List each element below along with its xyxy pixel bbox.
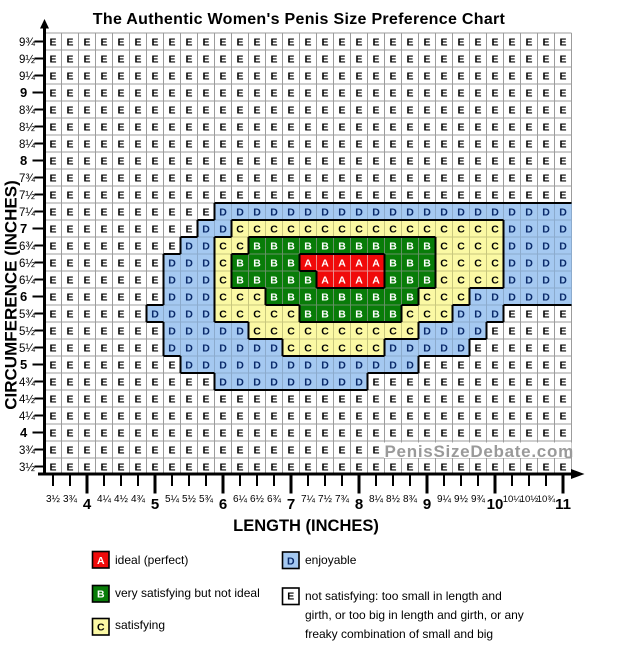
svg-text:E: E	[202, 206, 209, 218]
svg-text:E: E	[236, 104, 243, 116]
svg-text:D: D	[185, 325, 193, 337]
svg-text:E: E	[389, 410, 396, 422]
svg-text:E: E	[83, 70, 90, 82]
svg-text:5¾: 5¾	[19, 309, 35, 321]
svg-text:E: E	[117, 53, 124, 65]
svg-text:E: E	[83, 308, 90, 320]
svg-text:E: E	[423, 376, 430, 388]
svg-text:E: E	[219, 53, 226, 65]
svg-text:E: E	[355, 121, 362, 133]
svg-text:B: B	[423, 274, 431, 286]
svg-text:E: E	[406, 172, 413, 184]
svg-text:E: E	[457, 138, 464, 150]
svg-text:D: D	[491, 206, 499, 218]
svg-text:E: E	[253, 53, 260, 65]
svg-text:B: B	[355, 308, 363, 320]
svg-text:D: D	[253, 206, 261, 218]
svg-text:E: E	[168, 138, 175, 150]
svg-text:D: D	[168, 291, 176, 303]
svg-text:E: E	[100, 291, 107, 303]
svg-text:E: E	[151, 461, 158, 473]
svg-text:E: E	[253, 461, 260, 473]
svg-text:B: B	[304, 291, 312, 303]
svg-text:E: E	[542, 410, 549, 422]
svg-text:D: D	[440, 206, 448, 218]
svg-text:E: E	[457, 376, 464, 388]
svg-text:E: E	[321, 461, 328, 473]
svg-text:E: E	[474, 36, 481, 48]
svg-text:D: D	[185, 240, 193, 252]
svg-text:E: E	[304, 70, 311, 82]
svg-text:E: E	[491, 359, 498, 371]
svg-text:D: D	[406, 342, 414, 354]
svg-text:4¼: 4¼	[97, 493, 112, 505]
svg-text:E: E	[542, 87, 549, 99]
svg-text:E: E	[508, 172, 515, 184]
svg-text:E: E	[406, 104, 413, 116]
svg-text:9¾: 9¾	[19, 37, 35, 49]
svg-text:10¾: 10¾	[537, 494, 557, 505]
svg-text:E: E	[372, 376, 379, 388]
svg-text:E: E	[202, 87, 209, 99]
svg-text:E: E	[134, 87, 141, 99]
svg-text:E: E	[270, 410, 277, 422]
svg-text:E: E	[83, 359, 90, 371]
svg-text:C: C	[440, 308, 448, 320]
svg-text:E: E	[355, 172, 362, 184]
svg-text:E: E	[185, 444, 192, 456]
svg-text:A: A	[321, 257, 329, 269]
svg-text:E: E	[321, 393, 328, 405]
svg-text:5½: 5½	[182, 494, 197, 505]
svg-text:E: E	[253, 189, 260, 201]
svg-text:E: E	[372, 189, 379, 201]
svg-text:E: E	[406, 461, 413, 473]
svg-text:B: B	[253, 274, 261, 286]
svg-text:E: E	[491, 325, 498, 337]
svg-text:E: E	[117, 291, 124, 303]
svg-text:E: E	[134, 172, 141, 184]
svg-text:D: D	[559, 206, 567, 218]
svg-text:C: C	[440, 291, 448, 303]
svg-text:E: E	[134, 155, 141, 167]
svg-text:7¾: 7¾	[335, 494, 350, 505]
svg-text:D: D	[236, 359, 244, 371]
svg-text:B: B	[423, 240, 431, 252]
svg-text:E: E	[49, 206, 56, 218]
svg-text:D: D	[508, 257, 516, 269]
svg-text:E: E	[49, 172, 56, 184]
svg-text:E: E	[270, 70, 277, 82]
svg-text:C: C	[355, 223, 363, 235]
svg-text:E: E	[457, 104, 464, 116]
svg-text:E: E	[355, 104, 362, 116]
svg-text:E: E	[83, 121, 90, 133]
svg-text:E: E	[117, 87, 124, 99]
svg-text:A: A	[355, 257, 363, 269]
svg-text:B: B	[253, 257, 261, 269]
svg-text:E: E	[406, 70, 413, 82]
svg-text:E: E	[83, 393, 90, 405]
svg-text:E: E	[100, 240, 107, 252]
svg-text:A: A	[372, 274, 380, 286]
svg-text:E: E	[491, 172, 498, 184]
svg-text:E: E	[321, 427, 328, 439]
svg-text:E: E	[559, 376, 566, 388]
svg-text:C: C	[440, 240, 448, 252]
svg-text:E: E	[389, 376, 396, 388]
svg-text:C: C	[219, 308, 227, 320]
svg-text:C: C	[287, 342, 295, 354]
svg-text:E: E	[559, 70, 566, 82]
svg-text:D: D	[219, 359, 227, 371]
svg-text:E: E	[389, 53, 396, 65]
svg-text:D: D	[321, 206, 329, 218]
svg-text:B: B	[406, 274, 414, 286]
svg-text:E: E	[202, 444, 209, 456]
svg-text:very satisfying but not ideal: very satisfying but not ideal	[115, 586, 260, 600]
svg-text:E: E	[49, 138, 56, 150]
svg-text:B: B	[270, 257, 278, 269]
svg-text:9¼: 9¼	[437, 493, 452, 505]
svg-text:D: D	[253, 342, 261, 354]
svg-text:E: E	[100, 70, 107, 82]
svg-text:D: D	[542, 257, 550, 269]
svg-text:D: D	[202, 274, 210, 286]
svg-text:D: D	[542, 223, 550, 235]
svg-text:E: E	[474, 155, 481, 167]
svg-text:4½: 4½	[114, 494, 129, 505]
svg-text:E: E	[49, 444, 56, 456]
svg-text:C: C	[219, 291, 227, 303]
svg-text:E: E	[423, 36, 430, 48]
svg-text:E: E	[559, 308, 566, 320]
svg-text:E: E	[168, 410, 175, 422]
svg-text:6: 6	[219, 496, 227, 513]
svg-text:E: E	[508, 70, 515, 82]
svg-text:E: E	[253, 87, 260, 99]
svg-text:E: E	[474, 70, 481, 82]
svg-text:E: E	[423, 87, 430, 99]
svg-text:E: E	[457, 87, 464, 99]
svg-text:C: C	[440, 257, 448, 269]
svg-text:7½: 7½	[19, 190, 35, 202]
svg-text:E: E	[134, 223, 141, 235]
svg-text:6: 6	[20, 289, 27, 304]
svg-text:E: E	[474, 121, 481, 133]
svg-text:B: B	[423, 257, 431, 269]
svg-text:C: C	[440, 223, 448, 235]
svg-text:C: C	[406, 308, 414, 320]
svg-text:D: D	[185, 274, 193, 286]
svg-text:E: E	[100, 53, 107, 65]
svg-text:8¾: 8¾	[19, 105, 35, 117]
svg-text:D: D	[287, 376, 295, 388]
svg-text:E: E	[508, 36, 515, 48]
svg-text:8¾: 8¾	[403, 494, 418, 505]
svg-text:E: E	[83, 104, 90, 116]
svg-text:E: E	[270, 155, 277, 167]
svg-text:E: E	[151, 104, 158, 116]
svg-text:B: B	[389, 240, 397, 252]
svg-text:D: D	[355, 359, 363, 371]
svg-text:E: E	[304, 189, 311, 201]
svg-text:E: E	[304, 121, 311, 133]
svg-text:E: E	[406, 376, 413, 388]
svg-text:E: E	[457, 172, 464, 184]
svg-text:E: E	[474, 393, 481, 405]
svg-text:E: E	[151, 257, 158, 269]
svg-text:E: E	[321, 444, 328, 456]
svg-text:E: E	[423, 172, 430, 184]
svg-text:E: E	[355, 87, 362, 99]
svg-text:E: E	[185, 461, 192, 473]
svg-text:E: E	[66, 223, 73, 235]
svg-text:D: D	[236, 206, 244, 218]
svg-text:E: E	[542, 342, 549, 354]
svg-text:D: D	[559, 257, 567, 269]
svg-text:girth, or too big in length an: girth, or too big in length and girth, o…	[305, 608, 524, 622]
svg-text:C: C	[321, 325, 329, 337]
svg-text:E: E	[117, 393, 124, 405]
svg-text:E: E	[66, 461, 73, 473]
svg-text:E: E	[236, 155, 243, 167]
svg-text:E: E	[100, 274, 107, 286]
svg-text:E: E	[287, 461, 294, 473]
svg-text:3½: 3½	[46, 494, 61, 505]
svg-text:5¼: 5¼	[165, 493, 180, 505]
svg-text:D: D	[525, 291, 533, 303]
svg-text:D: D	[185, 308, 193, 320]
svg-text:B: B	[236, 274, 244, 286]
svg-text:E: E	[219, 121, 226, 133]
svg-text:E: E	[49, 393, 56, 405]
svg-text:E: E	[559, 121, 566, 133]
svg-text:D: D	[525, 257, 533, 269]
svg-text:E: E	[355, 189, 362, 201]
svg-text:E: E	[321, 53, 328, 65]
svg-text:E: E	[49, 223, 56, 235]
svg-text:E: E	[508, 410, 515, 422]
svg-text:E: E	[321, 155, 328, 167]
svg-text:C: C	[457, 291, 465, 303]
svg-text:E: E	[83, 206, 90, 218]
svg-text:E: E	[406, 393, 413, 405]
svg-text:E: E	[457, 155, 464, 167]
svg-text:E: E	[457, 393, 464, 405]
svg-text:The Authentic Women's Penis Si: The Authentic Women's Penis Size Prefere…	[93, 11, 506, 28]
svg-text:E: E	[559, 461, 566, 473]
svg-text:E: E	[270, 36, 277, 48]
svg-text:E: E	[508, 359, 515, 371]
svg-text:E: E	[66, 444, 73, 456]
svg-text:E: E	[185, 427, 192, 439]
svg-text:E: E	[474, 87, 481, 99]
svg-text:LENGTH (INCHES): LENGTH (INCHES)	[233, 517, 379, 535]
svg-text:C: C	[287, 325, 295, 337]
svg-text:E: E	[83, 342, 90, 354]
svg-text:E: E	[236, 393, 243, 405]
svg-text:D: D	[508, 240, 516, 252]
svg-text:E: E	[185, 223, 192, 235]
svg-text:E: E	[168, 240, 175, 252]
svg-text:E: E	[100, 393, 107, 405]
svg-text:C: C	[287, 308, 295, 320]
svg-text:E: E	[559, 427, 566, 439]
svg-text:E: E	[338, 138, 345, 150]
svg-text:E: E	[168, 359, 175, 371]
svg-text:E: E	[66, 308, 73, 320]
svg-text:E: E	[219, 172, 226, 184]
svg-text:E: E	[474, 53, 481, 65]
svg-text:E: E	[287, 410, 294, 422]
svg-text:E: E	[542, 121, 549, 133]
svg-text:E: E	[236, 36, 243, 48]
svg-text:E: E	[83, 376, 90, 388]
svg-text:E: E	[338, 393, 345, 405]
svg-text:E: E	[49, 342, 56, 354]
svg-text:ideal (perfect): ideal (perfect)	[115, 553, 188, 567]
svg-text:E: E	[304, 461, 311, 473]
svg-text:D: D	[542, 274, 550, 286]
svg-text:E: E	[66, 393, 73, 405]
svg-text:C: C	[219, 257, 227, 269]
svg-text:B: B	[304, 308, 312, 320]
svg-text:D: D	[202, 257, 210, 269]
svg-text:E: E	[219, 36, 226, 48]
svg-text:E: E	[508, 53, 515, 65]
svg-text:9½: 9½	[19, 54, 35, 66]
svg-text:E: E	[49, 257, 56, 269]
svg-text:E: E	[457, 36, 464, 48]
svg-text:satisfying: satisfying	[115, 618, 165, 632]
svg-text:E: E	[66, 427, 73, 439]
svg-text:E: E	[287, 189, 294, 201]
svg-text:E: E	[185, 155, 192, 167]
svg-text:E: E	[117, 410, 124, 422]
svg-text:E: E	[151, 70, 158, 82]
svg-text:E: E	[66, 206, 73, 218]
svg-text:D: D	[236, 376, 244, 388]
svg-text:5: 5	[20, 357, 27, 372]
svg-text:E: E	[355, 36, 362, 48]
svg-text:E: E	[168, 172, 175, 184]
svg-text:C: C	[372, 325, 380, 337]
svg-text:E: E	[219, 155, 226, 167]
svg-text:E: E	[355, 444, 362, 456]
svg-text:freaky combination of small an: freaky combination of small and big	[305, 627, 493, 641]
svg-text:C: C	[474, 240, 482, 252]
svg-text:E: E	[100, 410, 107, 422]
svg-text:E: E	[100, 121, 107, 133]
svg-text:E: E	[100, 444, 107, 456]
svg-text:C: C	[304, 223, 312, 235]
svg-text:E: E	[83, 427, 90, 439]
svg-text:B: B	[97, 589, 105, 601]
svg-text:E: E	[491, 36, 498, 48]
svg-text:E: E	[134, 138, 141, 150]
svg-text:E: E	[83, 223, 90, 235]
svg-text:E: E	[525, 359, 532, 371]
svg-text:E: E	[542, 155, 549, 167]
svg-text:E: E	[49, 189, 56, 201]
svg-text:E: E	[49, 410, 56, 422]
svg-text:E: E	[491, 427, 498, 439]
svg-text:D: D	[525, 240, 533, 252]
svg-text:B: B	[389, 291, 397, 303]
svg-text:E: E	[491, 121, 498, 133]
svg-text:9: 9	[423, 496, 431, 513]
svg-text:C: C	[423, 291, 431, 303]
svg-text:E: E	[491, 87, 498, 99]
svg-text:D: D	[542, 240, 550, 252]
svg-text:E: E	[117, 257, 124, 269]
svg-text:D: D	[202, 291, 210, 303]
svg-text:E: E	[440, 155, 447, 167]
svg-text:D: D	[338, 376, 346, 388]
svg-text:E: E	[185, 410, 192, 422]
svg-text:C: C	[253, 291, 261, 303]
svg-text:A: A	[304, 257, 312, 269]
svg-text:E: E	[338, 444, 345, 456]
svg-text:E: E	[270, 427, 277, 439]
svg-text:E: E	[338, 427, 345, 439]
svg-text:E: E	[389, 155, 396, 167]
svg-text:5½: 5½	[19, 326, 35, 338]
svg-text:D: D	[202, 223, 210, 235]
svg-text:D: D	[423, 342, 431, 354]
svg-text:E: E	[508, 427, 515, 439]
svg-text:E: E	[559, 359, 566, 371]
svg-text:E: E	[100, 325, 107, 337]
svg-text:7: 7	[20, 221, 27, 236]
svg-text:C: C	[355, 342, 363, 354]
svg-text:6½: 6½	[250, 494, 265, 505]
svg-text:D: D	[559, 291, 567, 303]
svg-text:E: E	[202, 138, 209, 150]
svg-text:D: D	[321, 359, 329, 371]
svg-text:C: C	[338, 325, 346, 337]
svg-text:E: E	[151, 342, 158, 354]
svg-text:E: E	[151, 53, 158, 65]
svg-text:E: E	[134, 257, 141, 269]
svg-text:E: E	[270, 121, 277, 133]
svg-text:E: E	[117, 274, 124, 286]
svg-text:D: D	[389, 359, 397, 371]
svg-text:A: A	[338, 257, 346, 269]
svg-text:E: E	[491, 393, 498, 405]
svg-text:E: E	[236, 138, 243, 150]
svg-text:E: E	[100, 461, 107, 473]
svg-text:E: E	[321, 189, 328, 201]
svg-text:E: E	[134, 240, 141, 252]
svg-text:E: E	[202, 155, 209, 167]
svg-text:E: E	[151, 291, 158, 303]
svg-text:E: E	[542, 308, 549, 320]
svg-text:E: E	[440, 359, 447, 371]
svg-text:E: E	[304, 444, 311, 456]
svg-text:E: E	[542, 376, 549, 388]
svg-text:E: E	[168, 427, 175, 439]
svg-text:E: E	[542, 53, 549, 65]
svg-text:E: E	[287, 155, 294, 167]
svg-text:E: E	[270, 189, 277, 201]
svg-text:E: E	[508, 104, 515, 116]
svg-text:E: E	[457, 461, 464, 473]
svg-text:3½: 3½	[19, 462, 35, 474]
svg-text:E: E	[542, 393, 549, 405]
svg-text:E: E	[134, 53, 141, 65]
